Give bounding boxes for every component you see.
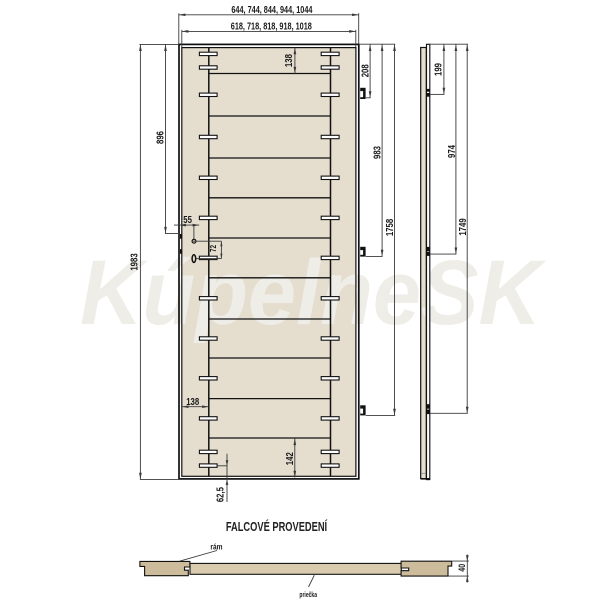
svg-text:974: 974 [446,145,457,158]
svg-text:983: 983 [372,146,383,159]
svg-text:FALCOVÉ PROVEDENÍ: FALCOVÉ PROVEDENÍ [226,519,328,534]
svg-text:138: 138 [186,396,199,407]
svg-text:896: 896 [154,131,165,144]
svg-text:199: 199 [433,63,444,76]
svg-text:618, 718, 818, 918, 1018: 618, 718, 818, 918, 1018 [231,20,312,32]
svg-text:55: 55 [183,214,192,225]
svg-text:138: 138 [283,54,294,67]
svg-text:1983: 1983 [128,253,139,270]
svg-text:KúpelneSK: KúpelneSK [80,242,547,344]
svg-text:142: 142 [284,452,295,465]
svg-text:72: 72 [208,245,218,252]
svg-text:40: 40 [457,563,467,571]
svg-text:208: 208 [359,64,370,77]
svg-text:priečka: priečka [299,591,317,599]
svg-text:62,5: 62,5 [215,487,226,502]
svg-text:644, 744, 844, 944, 1044: 644, 744, 844, 944, 1044 [231,4,312,16]
svg-text:1758: 1758 [384,219,395,236]
svg-text:1749: 1749 [457,218,468,235]
